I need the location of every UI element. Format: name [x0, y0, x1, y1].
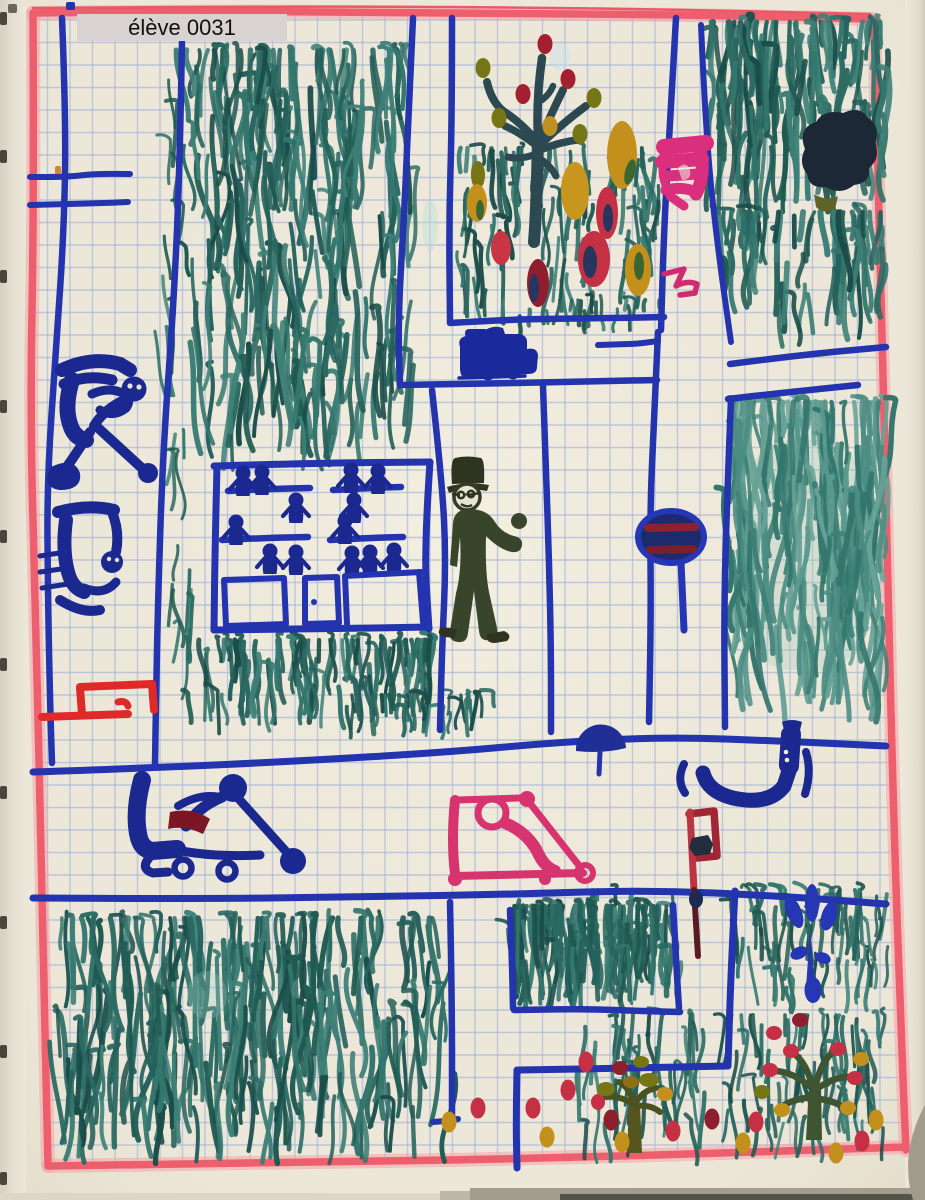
svg-text:élève 0031: élève 0031 — [128, 15, 236, 40]
